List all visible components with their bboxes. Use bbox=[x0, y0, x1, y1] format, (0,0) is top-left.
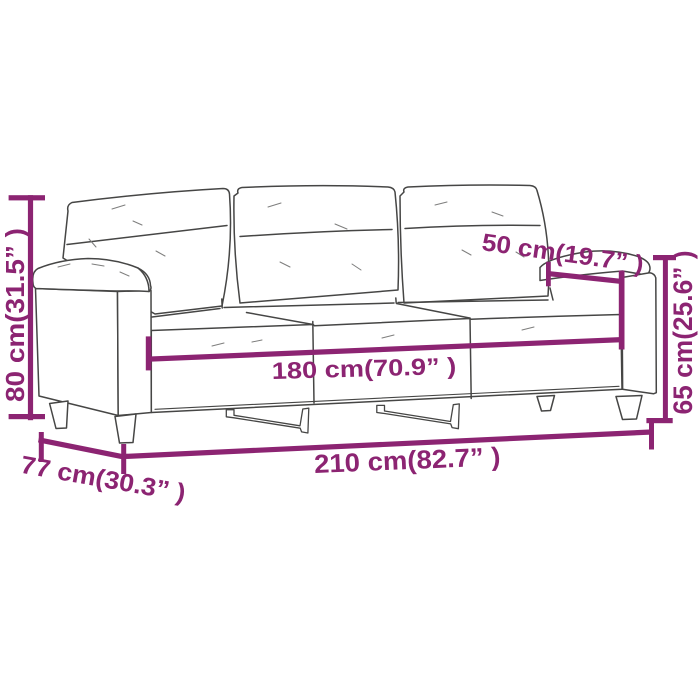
svg-text:180 cm(70.9” ): 180 cm(70.9” ) bbox=[271, 353, 456, 384]
svg-text:80 cm(31.5” ): 80 cm(31.5” ) bbox=[0, 228, 30, 402]
svg-text:65 cm(25.6” ): 65 cm(25.6” ) bbox=[668, 251, 698, 415]
svg-text:210 cm(82.7” ): 210 cm(82.7” ) bbox=[313, 441, 501, 479]
svg-text:77 cm(30.3” ): 77 cm(30.3” ) bbox=[18, 451, 187, 508]
